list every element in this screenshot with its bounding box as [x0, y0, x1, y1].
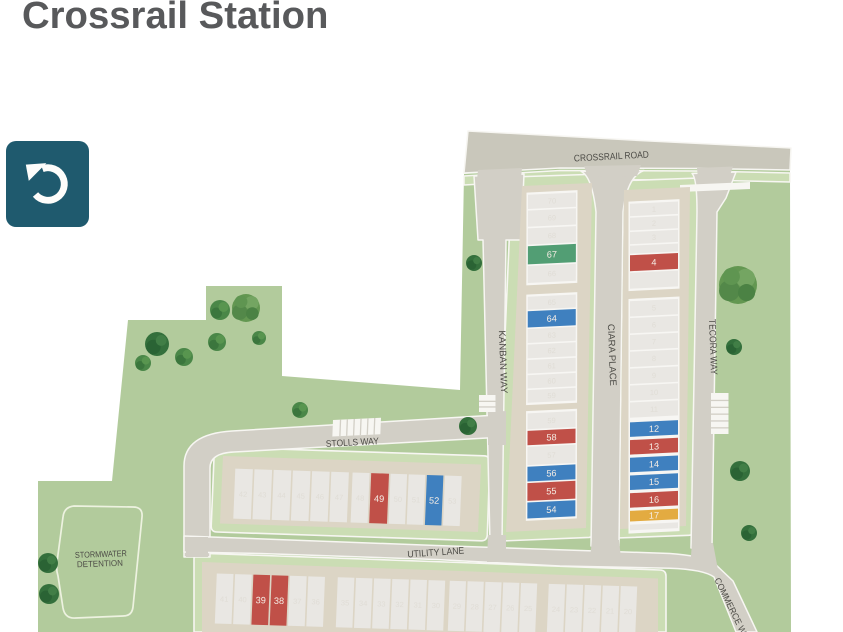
svg-text:8: 8 — [652, 354, 656, 363]
svg-text:41: 41 — [220, 594, 229, 603]
svg-text:29: 29 — [453, 602, 462, 611]
svg-text:62: 62 — [548, 346, 556, 355]
svg-text:54: 54 — [546, 505, 556, 515]
svg-text:44: 44 — [277, 491, 286, 500]
svg-text:70: 70 — [548, 196, 556, 205]
svg-text:48: 48 — [356, 493, 365, 502]
svg-text:CIARA PLACE: CIARA PLACE — [605, 324, 618, 386]
svg-text:2: 2 — [652, 219, 656, 228]
svg-text:9: 9 — [652, 371, 656, 380]
svg-text:53: 53 — [448, 496, 457, 505]
svg-text:40: 40 — [238, 595, 247, 604]
svg-text:45: 45 — [296, 491, 305, 500]
svg-text:66: 66 — [548, 269, 556, 278]
svg-text:15: 15 — [649, 477, 659, 487]
svg-text:59: 59 — [547, 416, 555, 425]
svg-text:56: 56 — [546, 468, 556, 478]
svg-text:61: 61 — [547, 361, 555, 370]
svg-text:38: 38 — [274, 596, 285, 606]
svg-text:64: 64 — [547, 313, 557, 323]
svg-text:17: 17 — [649, 510, 659, 520]
svg-text:39: 39 — [255, 595, 266, 605]
svg-text:5: 5 — [652, 303, 656, 312]
svg-text:47: 47 — [335, 493, 344, 502]
svg-text:49: 49 — [374, 494, 385, 504]
svg-text:69: 69 — [548, 213, 556, 222]
svg-text:4: 4 — [651, 257, 656, 267]
svg-text:KANBAN WAY: KANBAN WAY — [496, 330, 509, 394]
svg-text:21: 21 — [606, 606, 615, 615]
svg-text:7: 7 — [652, 337, 656, 346]
svg-text:28: 28 — [470, 602, 479, 611]
svg-text:27: 27 — [488, 603, 497, 612]
svg-text:36: 36 — [311, 597, 320, 606]
svg-text:23: 23 — [570, 605, 579, 614]
svg-text:1: 1 — [652, 205, 656, 214]
svg-text:57: 57 — [547, 450, 555, 459]
svg-text:60: 60 — [547, 376, 555, 385]
svg-text:6: 6 — [652, 320, 656, 329]
svg-text:10: 10 — [650, 388, 658, 397]
svg-text:67: 67 — [547, 249, 557, 259]
svg-text:16: 16 — [649, 495, 659, 505]
svg-text:13: 13 — [649, 441, 659, 451]
svg-text:31: 31 — [413, 600, 422, 609]
svg-text:52: 52 — [429, 495, 440, 505]
svg-text:68: 68 — [548, 231, 556, 240]
svg-text:30: 30 — [432, 601, 441, 610]
svg-text:42: 42 — [239, 490, 248, 499]
svg-text:43: 43 — [258, 490, 267, 499]
svg-text:65: 65 — [548, 298, 556, 307]
svg-text:24: 24 — [552, 605, 561, 614]
svg-text:51: 51 — [412, 495, 421, 504]
svg-text:58: 58 — [546, 432, 556, 442]
svg-text:12: 12 — [649, 424, 659, 434]
svg-text:35: 35 — [341, 598, 350, 607]
svg-text:DETENTION: DETENTION — [77, 558, 123, 570]
svg-text:37: 37 — [293, 597, 302, 606]
svg-text:32: 32 — [395, 600, 404, 609]
svg-text:11: 11 — [650, 405, 658, 414]
svg-text:25: 25 — [524, 604, 533, 613]
svg-text:26: 26 — [506, 603, 515, 612]
svg-text:59: 59 — [547, 391, 555, 400]
svg-text:20: 20 — [624, 607, 633, 616]
svg-text:22: 22 — [588, 606, 597, 615]
svg-text:3: 3 — [652, 233, 656, 242]
svg-text:TECORA WAY: TECORA WAY — [706, 319, 719, 376]
svg-text:50: 50 — [394, 495, 403, 504]
svg-text:63: 63 — [548, 331, 556, 340]
svg-text:46: 46 — [316, 492, 325, 501]
svg-text:14: 14 — [649, 459, 659, 469]
svg-text:55: 55 — [546, 486, 556, 496]
svg-text:34: 34 — [359, 599, 368, 608]
svg-text:33: 33 — [377, 599, 386, 608]
